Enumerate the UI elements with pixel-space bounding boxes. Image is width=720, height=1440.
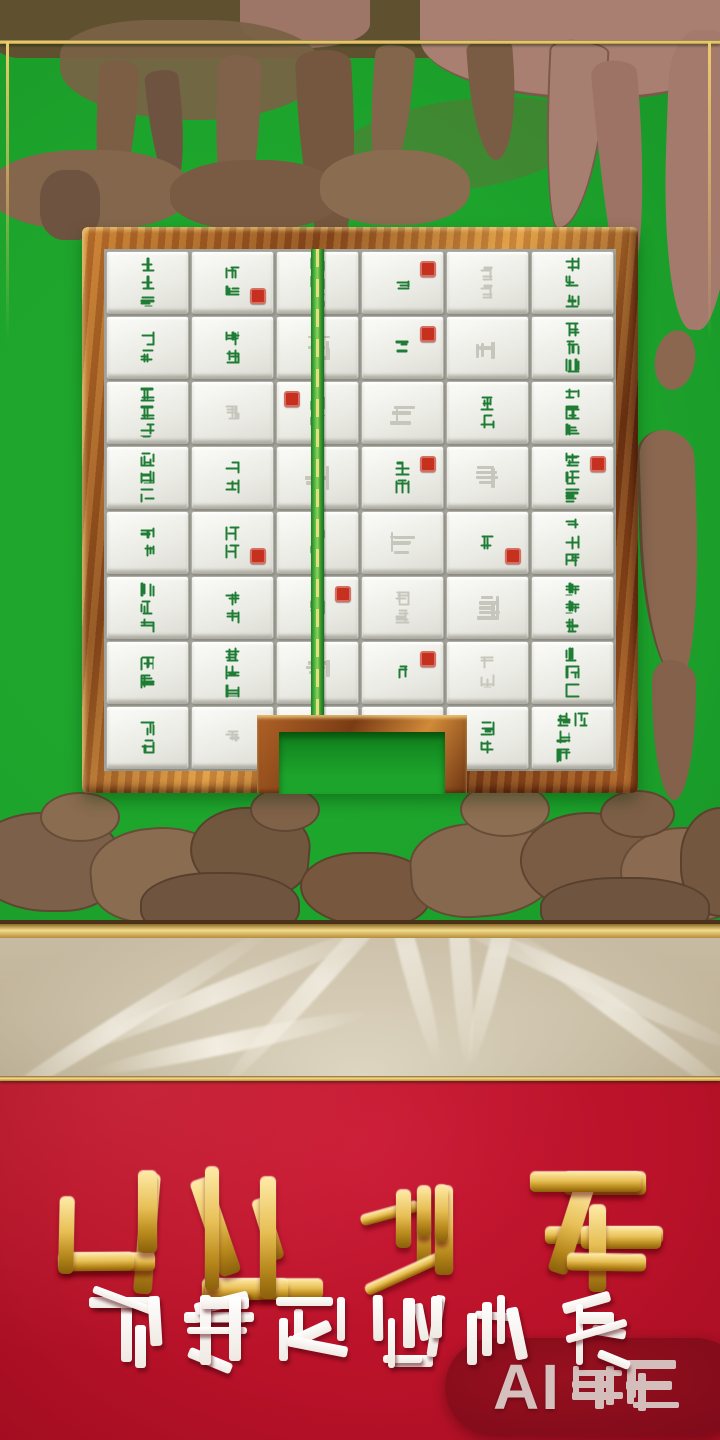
mahjong-tile[interactable] bbox=[531, 706, 614, 769]
mahjong-tile[interactable] bbox=[191, 381, 274, 444]
pseudo-glyph bbox=[140, 656, 155, 671]
bar bbox=[152, 454, 154, 463]
bar bbox=[480, 288, 491, 290]
pseudo-glyph bbox=[225, 349, 240, 364]
pseudo-glyph bbox=[565, 470, 580, 485]
pseudo-glyph bbox=[565, 452, 580, 467]
bar bbox=[589, 1205, 606, 1291]
bar bbox=[569, 323, 571, 337]
pseudo-glyph bbox=[395, 275, 410, 290]
bar bbox=[231, 468, 238, 470]
mahjong-tile[interactable] bbox=[191, 511, 274, 574]
bar bbox=[232, 288, 240, 290]
bar bbox=[152, 528, 154, 538]
mahjong-tile[interactable] bbox=[106, 706, 189, 769]
bar bbox=[58, 1197, 75, 1275]
pseudo-glyph bbox=[140, 526, 155, 541]
pseudo-glyph bbox=[390, 400, 416, 426]
bar bbox=[141, 453, 150, 455]
bar bbox=[147, 545, 149, 557]
pseudo-glyph bbox=[480, 739, 495, 754]
bar bbox=[229, 417, 239, 419]
bar bbox=[398, 613, 408, 615]
pseudo-glyph bbox=[140, 293, 155, 308]
streak bbox=[460, 938, 530, 1067]
pseudo-glyph bbox=[395, 461, 410, 476]
horse bbox=[600, 790, 675, 838]
mahjong-tile[interactable] bbox=[191, 251, 274, 314]
tile-glyph-stack bbox=[565, 322, 580, 373]
silk-band bbox=[0, 938, 720, 1076]
bar bbox=[396, 473, 409, 475]
tile-glyph-stack bbox=[475, 335, 501, 361]
tile-glyph-stack bbox=[140, 452, 155, 503]
bar bbox=[395, 341, 408, 343]
mahjong-tile[interactable] bbox=[446, 576, 529, 639]
bar bbox=[577, 345, 579, 354]
bar bbox=[481, 343, 484, 357]
bar bbox=[399, 669, 401, 678]
bar bbox=[152, 724, 154, 735]
tile-glyph-stack bbox=[480, 721, 495, 754]
mahjong-tile[interactable] bbox=[531, 641, 614, 704]
tile-glyph-stack bbox=[140, 656, 155, 689]
bar bbox=[557, 752, 570, 754]
bar bbox=[479, 481, 491, 484]
pseudo-glyph bbox=[565, 665, 580, 680]
bar bbox=[482, 296, 492, 298]
bar bbox=[226, 268, 228, 279]
bar bbox=[226, 659, 236, 661]
bar bbox=[225, 651, 239, 653]
bar bbox=[326, 341, 329, 361]
bar bbox=[141, 684, 155, 686]
tile-glyph-stack bbox=[565, 387, 580, 438]
mahjong-tile[interactable] bbox=[361, 316, 444, 379]
red-seal-stamp bbox=[420, 261, 436, 277]
pseudo-glyph bbox=[276, 1294, 350, 1368]
horse bbox=[40, 792, 120, 842]
red-seal-stamp bbox=[250, 288, 266, 304]
tile-glyph-stack bbox=[395, 665, 410, 680]
bar bbox=[400, 480, 407, 482]
pseudo-glyph bbox=[225, 730, 240, 745]
bar bbox=[496, 600, 500, 618]
blob bbox=[320, 150, 470, 225]
pseudo-glyph bbox=[556, 712, 571, 727]
bar bbox=[201, 1297, 249, 1309]
bar bbox=[569, 695, 576, 697]
bar bbox=[485, 728, 494, 730]
mahjong-tile[interactable] bbox=[361, 251, 444, 314]
bar bbox=[146, 343, 154, 345]
bar bbox=[530, 1172, 641, 1192]
bar bbox=[480, 733, 490, 735]
bar bbox=[237, 688, 239, 697]
streak bbox=[216, 938, 445, 1076]
mahjong-tile[interactable] bbox=[106, 511, 189, 574]
pseudo-glyph bbox=[395, 479, 410, 494]
mahjong-tile[interactable] bbox=[531, 446, 614, 509]
tile-glyph-stack bbox=[140, 526, 155, 559]
bar bbox=[396, 282, 410, 284]
bar bbox=[480, 684, 494, 686]
bar bbox=[141, 397, 154, 399]
blob bbox=[652, 660, 696, 800]
bar bbox=[260, 1177, 276, 1299]
bar bbox=[150, 476, 152, 484]
pseudo-glyph bbox=[140, 739, 155, 754]
bar bbox=[141, 300, 155, 303]
tile-glyph-stack bbox=[480, 396, 495, 429]
bar bbox=[572, 536, 574, 550]
streak bbox=[493, 938, 720, 1076]
bar bbox=[141, 406, 154, 409]
bar bbox=[276, 1297, 333, 1306]
tile-glyph-stack bbox=[395, 591, 410, 624]
bar bbox=[392, 411, 411, 415]
pseudo-glyph bbox=[565, 405, 580, 420]
pseudo-glyph bbox=[565, 358, 580, 373]
bar bbox=[142, 264, 153, 266]
pseudo-glyph bbox=[528, 1166, 666, 1304]
pseudo-glyph bbox=[395, 340, 410, 355]
bar bbox=[403, 1298, 415, 1348]
bar bbox=[565, 495, 574, 497]
pseudo-glyph bbox=[225, 526, 240, 541]
pseudo-glyph bbox=[480, 396, 495, 411]
tile-glyph-stack bbox=[225, 405, 240, 420]
bar bbox=[400, 344, 408, 346]
bar bbox=[145, 287, 152, 289]
mahjong-tile[interactable] bbox=[531, 576, 614, 639]
bar bbox=[482, 276, 493, 278]
pseudo-glyph bbox=[140, 618, 155, 633]
pseudo-glyph bbox=[350, 1183, 454, 1287]
pseudo-glyph bbox=[565, 293, 580, 308]
blob bbox=[170, 160, 340, 230]
red-seal-stamp bbox=[590, 456, 606, 472]
tile-glyph-stack bbox=[390, 530, 416, 556]
bar bbox=[142, 474, 151, 477]
bar bbox=[577, 535, 579, 548]
bar bbox=[397, 595, 410, 597]
bar bbox=[135, 1325, 145, 1368]
bar bbox=[596, 1349, 630, 1370]
bar bbox=[569, 600, 571, 612]
bar bbox=[147, 601, 149, 615]
bar bbox=[235, 546, 237, 558]
bar bbox=[140, 464, 153, 466]
bar bbox=[152, 545, 154, 554]
mahjong-tile[interactable] bbox=[531, 381, 614, 444]
game-subtitle-calligraphy bbox=[0, 1286, 720, 1376]
bar bbox=[556, 740, 567, 743]
gold-frame-line-left bbox=[6, 42, 9, 342]
bar bbox=[414, 1302, 430, 1342]
bar bbox=[396, 621, 410, 623]
bar bbox=[481, 749, 493, 751]
bar bbox=[497, 1295, 506, 1343]
pseudo-glyph bbox=[225, 665, 240, 680]
bar bbox=[235, 270, 237, 279]
bar bbox=[407, 481, 409, 493]
pseudo-glyph bbox=[140, 331, 155, 346]
pseudo-glyph bbox=[480, 656, 495, 671]
mahjong-tile[interactable] bbox=[446, 446, 529, 509]
bar bbox=[232, 266, 234, 278]
bar bbox=[395, 468, 406, 470]
bar bbox=[490, 399, 492, 406]
bar bbox=[481, 722, 491, 724]
bar bbox=[577, 360, 579, 370]
tile-glyph-stack bbox=[395, 461, 410, 494]
mahjong-tile[interactable] bbox=[106, 446, 189, 509]
notch-opening bbox=[279, 732, 445, 794]
bar bbox=[565, 261, 577, 263]
bar bbox=[565, 560, 575, 562]
pseudo-glyph bbox=[140, 488, 155, 503]
pseudo-glyph bbox=[225, 266, 240, 281]
bar bbox=[480, 657, 494, 659]
bar bbox=[484, 400, 486, 407]
bar bbox=[567, 1254, 646, 1272]
gold-frame-line-top bbox=[0, 40, 720, 44]
pseudo-glyph bbox=[395, 591, 410, 606]
tile-glyph-stack bbox=[395, 275, 410, 290]
tile-glyph-stack bbox=[140, 582, 155, 633]
mahjong-tile[interactable] bbox=[191, 446, 274, 509]
tile-glyph-stack bbox=[225, 591, 240, 624]
tile-glyph-stack bbox=[565, 647, 580, 698]
pseudo-glyph bbox=[565, 423, 580, 438]
mahjong-board[interactable] bbox=[82, 227, 638, 793]
bar bbox=[480, 270, 491, 272]
pseudo-glyph bbox=[565, 340, 580, 355]
bar bbox=[396, 1190, 411, 1247]
mahjong-tile[interactable] bbox=[361, 446, 444, 509]
bar bbox=[147, 1295, 162, 1345]
tile-glyph-stack bbox=[140, 331, 155, 364]
bar bbox=[482, 278, 492, 280]
bar bbox=[571, 524, 579, 526]
bar bbox=[563, 722, 570, 724]
bar bbox=[567, 397, 575, 399]
bar bbox=[566, 276, 568, 283]
pseudo-glyph bbox=[140, 600, 155, 615]
bar bbox=[226, 412, 237, 414]
mahjong-tile[interactable] bbox=[106, 381, 189, 444]
mahjong-tile[interactable] bbox=[531, 251, 614, 314]
bar bbox=[237, 353, 239, 363]
pseudo-glyph bbox=[558, 1294, 632, 1368]
tile-glyph-stack bbox=[225, 266, 240, 299]
tile-glyph-stack bbox=[140, 721, 155, 754]
mahjong-tile[interactable] bbox=[106, 251, 189, 314]
tile-glyph-stack bbox=[225, 461, 240, 494]
bar bbox=[572, 344, 574, 354]
bar bbox=[230, 737, 240, 739]
mahjong-tile[interactable] bbox=[361, 641, 444, 704]
streak bbox=[91, 1004, 369, 1076]
bar bbox=[147, 354, 149, 363]
bar bbox=[577, 389, 579, 397]
board-bottom-notch bbox=[257, 715, 467, 793]
pseudo-glyph bbox=[225, 647, 240, 662]
bamboo-divider bbox=[311, 249, 324, 771]
streak bbox=[372, 938, 448, 1067]
red-banner: AI bbox=[0, 1081, 720, 1440]
pseudo-glyph bbox=[88, 1294, 162, 1368]
tile-glyph-stack bbox=[225, 331, 240, 364]
pseudo-glyph bbox=[225, 479, 240, 494]
pseudo-glyph bbox=[565, 647, 580, 662]
pseudo-glyph bbox=[140, 423, 155, 438]
pseudo-glyph bbox=[370, 1294, 444, 1368]
pseudo-glyph bbox=[475, 595, 501, 621]
pseudo-glyph bbox=[565, 600, 580, 615]
pseudo-glyph bbox=[182, 1294, 256, 1368]
mahjong-tile[interactable] bbox=[191, 576, 274, 639]
pseudo-glyph bbox=[480, 674, 495, 689]
mahjong-tile[interactable] bbox=[191, 641, 274, 704]
tile-glyph-stack bbox=[480, 266, 495, 299]
bar bbox=[572, 453, 574, 464]
pseudo-glyph bbox=[556, 730, 571, 745]
pseudo-glyph bbox=[395, 609, 410, 624]
mahjong-tile[interactable] bbox=[446, 316, 529, 379]
bar bbox=[483, 424, 490, 426]
bar bbox=[485, 408, 494, 410]
bar bbox=[141, 303, 150, 305]
bar bbox=[235, 528, 237, 540]
table-background bbox=[0, 0, 720, 938]
pseudo-glyph bbox=[140, 349, 155, 364]
bar bbox=[476, 476, 497, 479]
tile-glyph-stack bbox=[480, 656, 495, 689]
bar bbox=[142, 350, 149, 352]
tile-glyph-stack bbox=[225, 730, 240, 745]
bar bbox=[142, 678, 153, 680]
tile-glyph-stack bbox=[565, 452, 580, 503]
mahjong-tile[interactable] bbox=[106, 576, 189, 639]
bar bbox=[479, 606, 494, 610]
bar bbox=[152, 622, 154, 633]
bar bbox=[565, 594, 572, 596]
bar bbox=[566, 489, 577, 491]
bar bbox=[142, 435, 150, 437]
red-seal-stamp bbox=[420, 651, 436, 667]
tile-glyph-stack bbox=[565, 582, 580, 633]
streak bbox=[431, 938, 720, 1061]
red-seal-stamp bbox=[335, 586, 351, 602]
bar bbox=[141, 582, 143, 596]
pseudo-glyph bbox=[140, 721, 155, 736]
bar bbox=[487, 538, 489, 550]
bar bbox=[567, 492, 576, 494]
mahjong-tile[interactable] bbox=[361, 511, 444, 574]
mahjong-tile[interactable] bbox=[106, 641, 189, 704]
bar bbox=[231, 462, 239, 464]
mahjong-tile[interactable] bbox=[361, 381, 444, 444]
red-seal-stamp bbox=[284, 391, 300, 407]
mahjong-tile[interactable] bbox=[531, 316, 614, 379]
bar bbox=[142, 282, 153, 284]
bar bbox=[396, 480, 398, 494]
mahjong-tile[interactable] bbox=[446, 381, 529, 444]
bar bbox=[569, 294, 571, 302]
bar bbox=[402, 482, 404, 493]
bar bbox=[566, 456, 580, 458]
pseudo-glyph bbox=[140, 544, 155, 559]
bar bbox=[467, 1313, 477, 1365]
mahjong-tile[interactable] bbox=[446, 251, 529, 314]
bar bbox=[580, 724, 588, 726]
pseudo-glyph bbox=[480, 266, 495, 281]
mahjong-tile[interactable] bbox=[531, 511, 614, 574]
bar bbox=[566, 665, 569, 678]
bar bbox=[572, 1392, 610, 1400]
bar bbox=[567, 684, 580, 686]
bar bbox=[569, 329, 578, 331]
bar bbox=[226, 409, 236, 411]
bar bbox=[567, 427, 577, 429]
bar bbox=[570, 672, 580, 674]
bar bbox=[566, 471, 568, 483]
pseudo-glyph bbox=[225, 461, 240, 476]
mahjong-tile[interactable] bbox=[446, 641, 529, 704]
pseudo-glyph bbox=[480, 414, 495, 429]
bar bbox=[557, 748, 559, 762]
pseudo-glyph bbox=[565, 618, 580, 633]
tile-glyph-stack bbox=[390, 400, 416, 426]
bar bbox=[557, 719, 570, 722]
pseudo-glyph bbox=[565, 517, 580, 532]
pseudo-glyph bbox=[556, 748, 571, 763]
bar bbox=[506, 1306, 529, 1361]
bar bbox=[141, 388, 154, 391]
bar bbox=[141, 494, 143, 502]
bar bbox=[394, 406, 415, 409]
bar bbox=[390, 421, 412, 425]
bar bbox=[481, 660, 494, 662]
pseudo-glyph bbox=[395, 665, 410, 680]
tile-glyph-stack bbox=[565, 257, 580, 308]
streak bbox=[0, 938, 279, 1076]
bar bbox=[572, 648, 574, 660]
blob bbox=[650, 327, 700, 393]
pseudo-glyph bbox=[225, 544, 240, 559]
red-seal-stamp bbox=[505, 548, 521, 564]
mahjong-tile[interactable] bbox=[106, 316, 189, 379]
bar bbox=[566, 358, 568, 371]
board-tile-area bbox=[104, 249, 616, 771]
bar bbox=[567, 267, 579, 269]
pseudo-glyph bbox=[140, 470, 155, 485]
bar bbox=[431, 1296, 442, 1338]
pseudo-glyph bbox=[225, 683, 240, 698]
tile-glyph-stack bbox=[395, 340, 410, 355]
pseudo-glyph bbox=[225, 591, 240, 606]
bar bbox=[565, 305, 578, 308]
pseudo-glyph bbox=[565, 582, 580, 597]
bar bbox=[141, 415, 154, 417]
mahjong-tile[interactable] bbox=[361, 576, 444, 639]
bar bbox=[568, 370, 580, 372]
bar bbox=[396, 619, 404, 621]
mahjong-tile[interactable] bbox=[446, 511, 529, 574]
mahjong-tile[interactable] bbox=[191, 316, 274, 379]
